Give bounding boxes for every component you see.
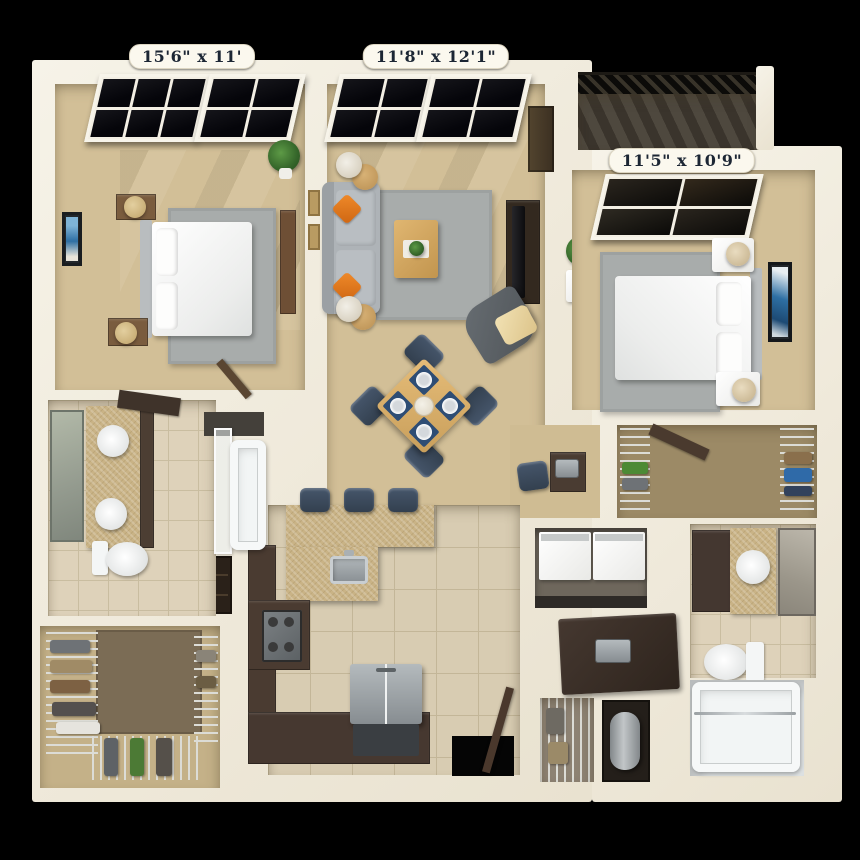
laundry-threshold: [535, 596, 647, 608]
bedroom1-lamp-bottom: [115, 322, 137, 344]
bar-stool-3: [388, 488, 418, 512]
bedroom1-wall-art: [62, 212, 82, 266]
shower-curtain-rod: [694, 712, 796, 715]
window-pane: [597, 209, 676, 236]
window-pane: [125, 110, 163, 138]
plate-east: [442, 398, 458, 414]
kitchen-sink: [330, 556, 368, 584]
bathroom1-mirror: [50, 410, 84, 542]
living-room-dimension-label: 11'8" x 12'1": [363, 44, 509, 69]
balcony-right-post: [756, 66, 774, 150]
window-pane: [207, 79, 255, 107]
bedroom1-window-right: [194, 74, 306, 142]
balcony-door-frame: [528, 106, 554, 172]
den-desk-laptop: [596, 640, 630, 662]
window-pane: [252, 79, 300, 107]
window-pane: [132, 79, 170, 107]
window-pane: [160, 110, 198, 138]
bedroom1-dresser: [280, 210, 296, 314]
window-pane: [330, 110, 377, 138]
water-heater: [610, 712, 640, 770]
plate-south: [416, 424, 432, 440]
bedroom1-pillow-top: [156, 228, 178, 276]
refrigerator-front: [353, 724, 419, 756]
closet1-clothes-tan: [50, 660, 92, 673]
dryer: [593, 532, 645, 580]
window-pane: [381, 79, 428, 107]
gallery-frame-2: [308, 224, 320, 250]
dryer-control-panel: [595, 534, 643, 541]
bedroom2-window: [590, 174, 763, 240]
closet1-clothes-right1: [196, 650, 216, 662]
burner: [268, 617, 278, 627]
window-pane: [603, 179, 682, 206]
closet1-clothes-gray1: [50, 640, 90, 653]
living-window-right: [416, 74, 532, 142]
bathroom1-toilet-bowl: [106, 542, 148, 576]
closet2-clothes-navy: [784, 486, 812, 496]
table-centerpiece: [415, 397, 433, 415]
bedroom1-pillow-bottom: [156, 282, 178, 330]
desk-chair: [516, 460, 550, 492]
bathroom2-mirror: [778, 528, 816, 616]
window-pane: [672, 209, 751, 236]
refrigerator: [350, 664, 422, 724]
balcony-deck: [578, 94, 762, 150]
bathroom1-sink-bottom: [95, 498, 127, 530]
floor-lamp-top: [336, 152, 362, 178]
window-pane: [469, 110, 519, 138]
window-pane: [167, 79, 205, 107]
window-pane: [679, 179, 758, 206]
bedroom2-lamp-top: [726, 242, 750, 266]
bathroom1-vanity-cabinets: [140, 408, 154, 548]
bedroom2-headboard: [750, 268, 762, 380]
burner: [284, 642, 294, 652]
bedroom2-pillow-bottom: [716, 332, 742, 376]
closet2-clothes-brown: [784, 452, 812, 464]
window-pane: [429, 79, 479, 107]
bathroom1-sink-top: [97, 425, 129, 457]
burner: [284, 617, 294, 627]
window-pane: [422, 110, 472, 138]
washer-control-panel: [541, 534, 589, 541]
bedroom2-dimension-label: 11'5" x 10'9": [609, 148, 755, 173]
window-pane: [476, 79, 526, 107]
fridge-door-seam: [385, 664, 387, 724]
stove-cooktop: [262, 610, 302, 662]
window-pane: [200, 110, 248, 138]
hall-desk-laptop: [556, 460, 578, 477]
bar-stool-1: [300, 488, 330, 512]
tv-screen: [512, 206, 525, 298]
window-pane: [245, 110, 293, 138]
bedroom2-pillow-top: [716, 282, 742, 326]
plate-north: [416, 372, 432, 388]
closet1-clothes-right2: [196, 676, 216, 688]
plate-west: [390, 398, 406, 414]
window-pane: [90, 110, 128, 138]
window-pane: [374, 110, 421, 138]
window-pane: [97, 79, 135, 107]
bathroom2-toilet-tank: [746, 642, 764, 682]
closet1-clothes-gray2: [52, 702, 96, 716]
closet2-clothes-blue: [784, 468, 812, 482]
bathroom2-vanity-cabinets: [692, 530, 732, 612]
shoe-closet-items1: [546, 708, 564, 734]
fridge-handles: [376, 668, 396, 672]
bedroom1-dimension-label: 15'6" x 11': [129, 44, 255, 69]
closet1-clothes-bottom-dark: [156, 738, 172, 776]
shower-ledge: [204, 412, 264, 436]
closet1-clothes-brown: [50, 680, 90, 693]
bathroom2-sink: [736, 550, 770, 584]
closet1-clothes-white: [56, 722, 100, 734]
art-canvas: [66, 217, 78, 261]
shoe-closet-items2: [548, 742, 568, 764]
coffee-table-plant: [409, 241, 424, 256]
bedroom1-plant-pot: [279, 168, 292, 179]
bedroom1-window-left: [84, 74, 212, 142]
gallery-frame-1: [308, 190, 320, 216]
art-canvas: [772, 267, 788, 337]
bar-stool-2: [344, 488, 374, 512]
closet2-clothes-gray: [622, 478, 648, 490]
closet1-rug: [96, 630, 202, 734]
bathroom1-tub: [230, 440, 266, 550]
burner: [268, 642, 278, 652]
bathroom2-tub: [692, 682, 800, 772]
bathroom2-toilet-bowl: [704, 644, 748, 680]
washer: [539, 532, 591, 580]
closet1-clothes-bottom-gray: [104, 738, 118, 776]
window-pane: [337, 79, 384, 107]
closet2-clothes-green: [622, 462, 648, 474]
bedroom2-wall-art: [768, 262, 792, 342]
bedroom1-lamp-top: [124, 196, 146, 218]
kitchen-faucet: [344, 550, 354, 556]
bedroom2-lamp-bottom: [732, 378, 756, 402]
closet1-clothes-bottom-green: [130, 738, 144, 776]
floor-lamp-bottom: [336, 296, 362, 322]
floor-plan-render: 15'6" x 11' 11'8" x 12'1" 11'5" x 10'9": [0, 0, 860, 860]
